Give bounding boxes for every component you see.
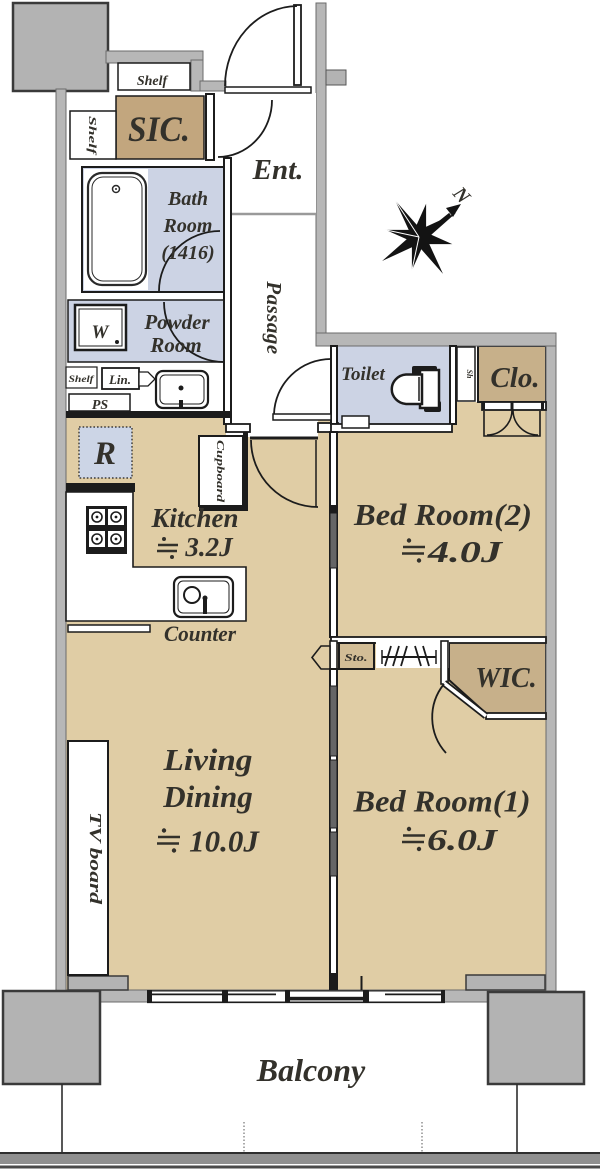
svg-text:Room: Room	[163, 215, 213, 237]
svg-text:W: W	[92, 322, 110, 343]
svg-text:Shelf: Shelf	[137, 74, 169, 89]
svg-text:Shelf: Shelf	[69, 374, 95, 384]
svg-text:Kitchen: Kitchen	[150, 503, 238, 533]
svg-text:Bed Room(1): Bed Room(1)	[352, 784, 530, 819]
svg-text:6.0J: 6.0J	[427, 822, 499, 857]
svg-text:Passage: Passage	[262, 280, 286, 355]
svg-text:Counter: Counter	[164, 621, 236, 646]
svg-text:Ent.: Ent.	[252, 154, 304, 186]
svg-text:Toilet: Toilet	[341, 364, 385, 385]
svg-text:Bed Room(2): Bed Room(2)	[353, 497, 532, 532]
svg-text:10.0J: 10.0J	[189, 824, 260, 859]
svg-text:Clo.: Clo.	[490, 362, 539, 394]
svg-text:Living: Living	[162, 742, 252, 777]
svg-text:Sto.: Sto.	[345, 653, 368, 664]
svg-text:Shelf: Shelf	[86, 116, 98, 156]
svg-text:SIC.: SIC.	[128, 109, 190, 149]
svg-text:Balcony: Balcony	[256, 1052, 366, 1088]
svg-text:Lin.: Lin.	[108, 372, 131, 387]
svg-text:3.2J: 3.2J	[184, 532, 234, 562]
svg-text:R: R	[93, 436, 116, 472]
svg-text:Sh: Sh	[465, 370, 474, 379]
svg-text:(1416): (1416)	[161, 242, 214, 264]
svg-text:4.0J: 4.0J	[427, 534, 504, 569]
svg-text:WIC.: WIC.	[475, 663, 536, 694]
svg-text:PS: PS	[92, 398, 109, 413]
svg-text:Bath: Bath	[167, 188, 208, 210]
svg-text:Cupboard: Cupboard	[214, 440, 225, 504]
svg-text:Powder: Powder	[143, 310, 210, 334]
svg-text:Dining: Dining	[162, 779, 253, 814]
svg-text:TV board: TV board	[86, 812, 105, 905]
svg-text:Room: Room	[149, 333, 201, 357]
